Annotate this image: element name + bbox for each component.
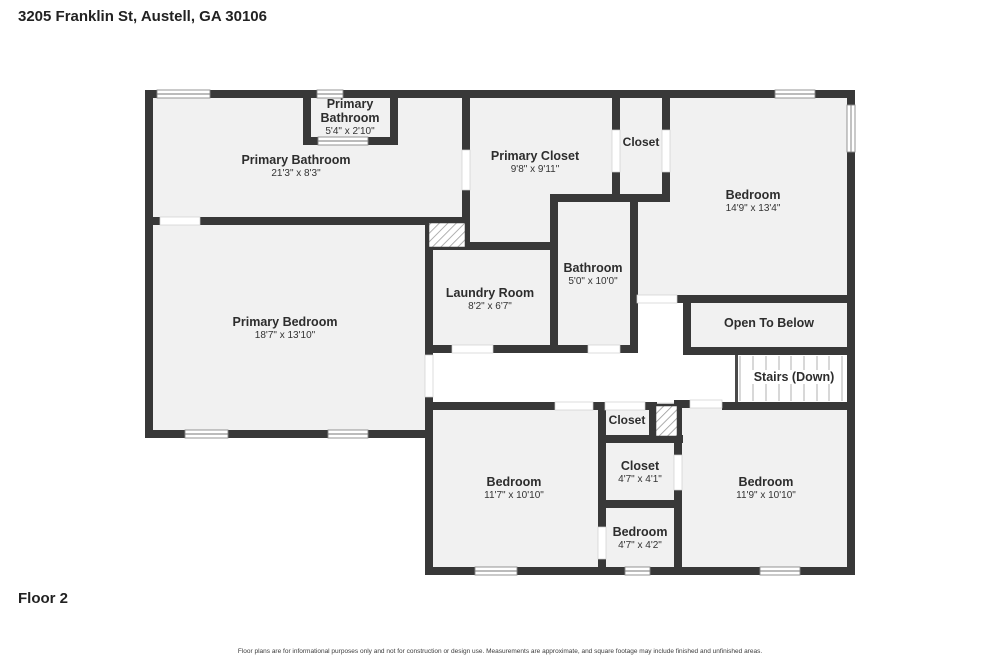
room-label-primary-bathroom: Primary Bathroom 21'3" x 8'3" (241, 153, 350, 179)
disclaimer-text: Floor plans are for informational purpos… (0, 648, 1000, 655)
floor-label: Floor 2 (18, 590, 68, 607)
room-label-bedroom-bottom-middle: Bedroom 11'7" x 10'10" (484, 475, 544, 501)
room-label-primary-bedroom: Primary Bedroom 18'7" x 13'10" (233, 315, 338, 341)
room-label-bedroom-small: Bedroom 4'7" x 4'2" (613, 525, 668, 551)
floor-plan-drawing (0, 0, 1000, 667)
room-label-bedroom-top-right: Bedroom 14'9" x 13'4" (726, 188, 781, 214)
room-label-laundry-room: Laundry Room 8'2" x 6'7" (446, 286, 534, 312)
room-label-closet-small: Closet (609, 413, 646, 427)
room-label-bathroom: Bathroom 5'0" x 10'0" (563, 261, 622, 287)
floor-plan-page: 3205 Franklin St, Austell, GA 30106 (0, 0, 1000, 667)
room-label-closet-top: Closet (623, 135, 660, 149)
room-label-primary-bathroom-small: Primary Bathroom 5'4" x 2'10" (304, 97, 396, 137)
room-label-closet-47: Closet 4'7" x 4'1" (618, 459, 662, 485)
room-label-open-to-below: Open To Below (724, 316, 814, 330)
room-label-primary-closet: Primary Closet 9'8" x 9'11" (491, 149, 579, 175)
room-label-bedroom-bottom-right: Bedroom 11'9" x 10'10" (736, 475, 796, 501)
room-label-stairs-down: Stairs (Down) (750, 370, 839, 384)
